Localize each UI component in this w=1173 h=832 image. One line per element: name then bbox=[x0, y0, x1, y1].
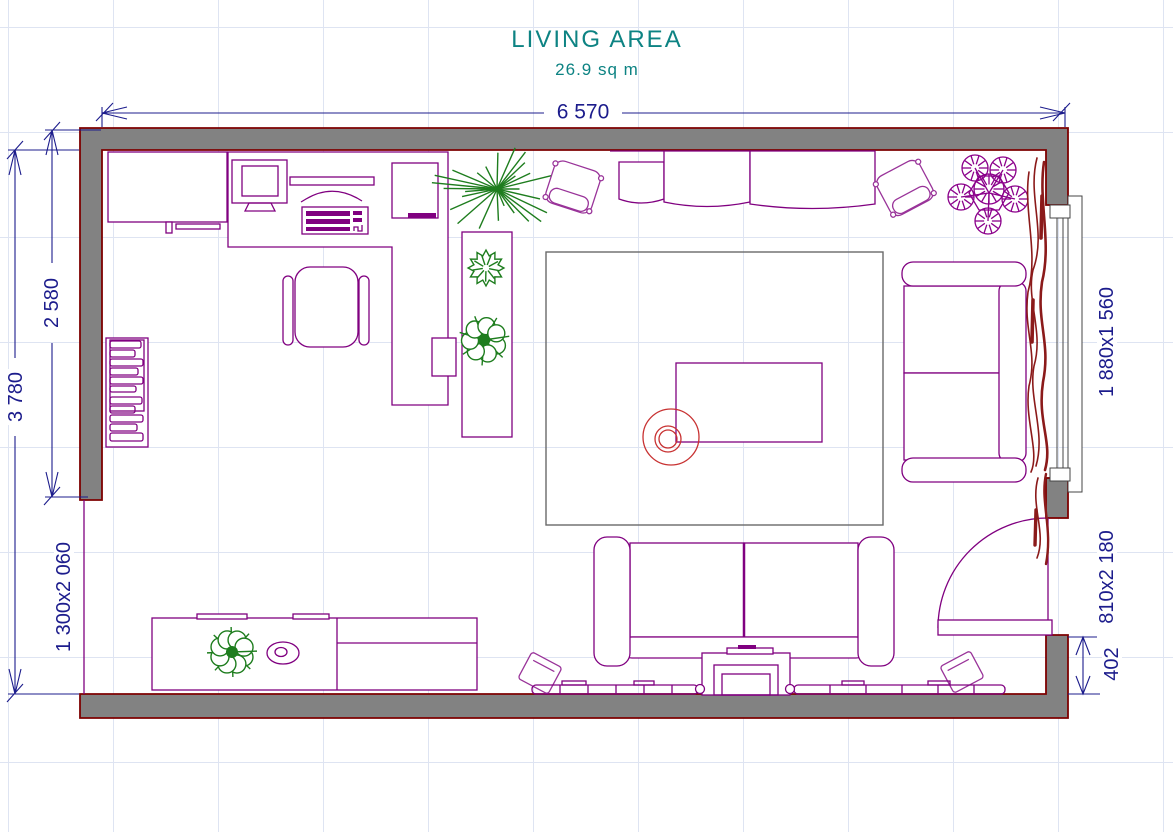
bookshelf bbox=[106, 338, 148, 447]
baseboard-shelf-left bbox=[532, 681, 698, 694]
floor-plan-drawing bbox=[0, 0, 1173, 832]
flower-plant bbox=[948, 155, 1028, 234]
baseboard-end-cap-1 bbox=[696, 685, 705, 694]
dim-top-width: 6 570 bbox=[554, 102, 613, 123]
dim-left-opening: 1 300x2 060 bbox=[54, 539, 74, 655]
door-swing-arc bbox=[938, 518, 1048, 628]
accent-chair-2 bbox=[871, 156, 938, 220]
dim-total-height: 3 780 bbox=[6, 369, 26, 425]
tv-bench bbox=[108, 152, 227, 233]
curtains bbox=[1027, 158, 1048, 564]
dim-window: 1 880x1 560 bbox=[1097, 284, 1117, 400]
crt-monitor bbox=[232, 160, 287, 211]
window-frame-cap-top bbox=[1050, 205, 1070, 218]
sideboard-top bbox=[610, 151, 875, 209]
door-leaf bbox=[938, 620, 1052, 635]
window-sill bbox=[1068, 196, 1082, 492]
baseboard-end-cap-2 bbox=[786, 685, 795, 694]
sideboard-bottom bbox=[152, 614, 477, 690]
laptop bbox=[392, 163, 438, 218]
office-chair bbox=[283, 267, 369, 347]
floor-plan-canvas: LIVING AREA 26.9 sq m bbox=[0, 0, 1173, 832]
dim-door: 810x2 180 bbox=[1097, 527, 1117, 626]
speaker-right bbox=[940, 651, 984, 693]
dim-wall-segment: 402 bbox=[1102, 644, 1122, 683]
pc-tower bbox=[432, 338, 456, 376]
window bbox=[1050, 196, 1082, 492]
tv-stand bbox=[702, 645, 790, 695]
dim-inner-height: 2 580 bbox=[42, 275, 62, 331]
window-frame-cap-bottom bbox=[1050, 468, 1070, 481]
loveseat bbox=[902, 262, 1026, 482]
speaker-left bbox=[518, 652, 562, 694]
keyboard bbox=[302, 207, 368, 234]
yucca-plant bbox=[432, 148, 553, 229]
accent-chair-1 bbox=[541, 158, 605, 216]
wall-right-mid-segment bbox=[1046, 478, 1068, 518]
